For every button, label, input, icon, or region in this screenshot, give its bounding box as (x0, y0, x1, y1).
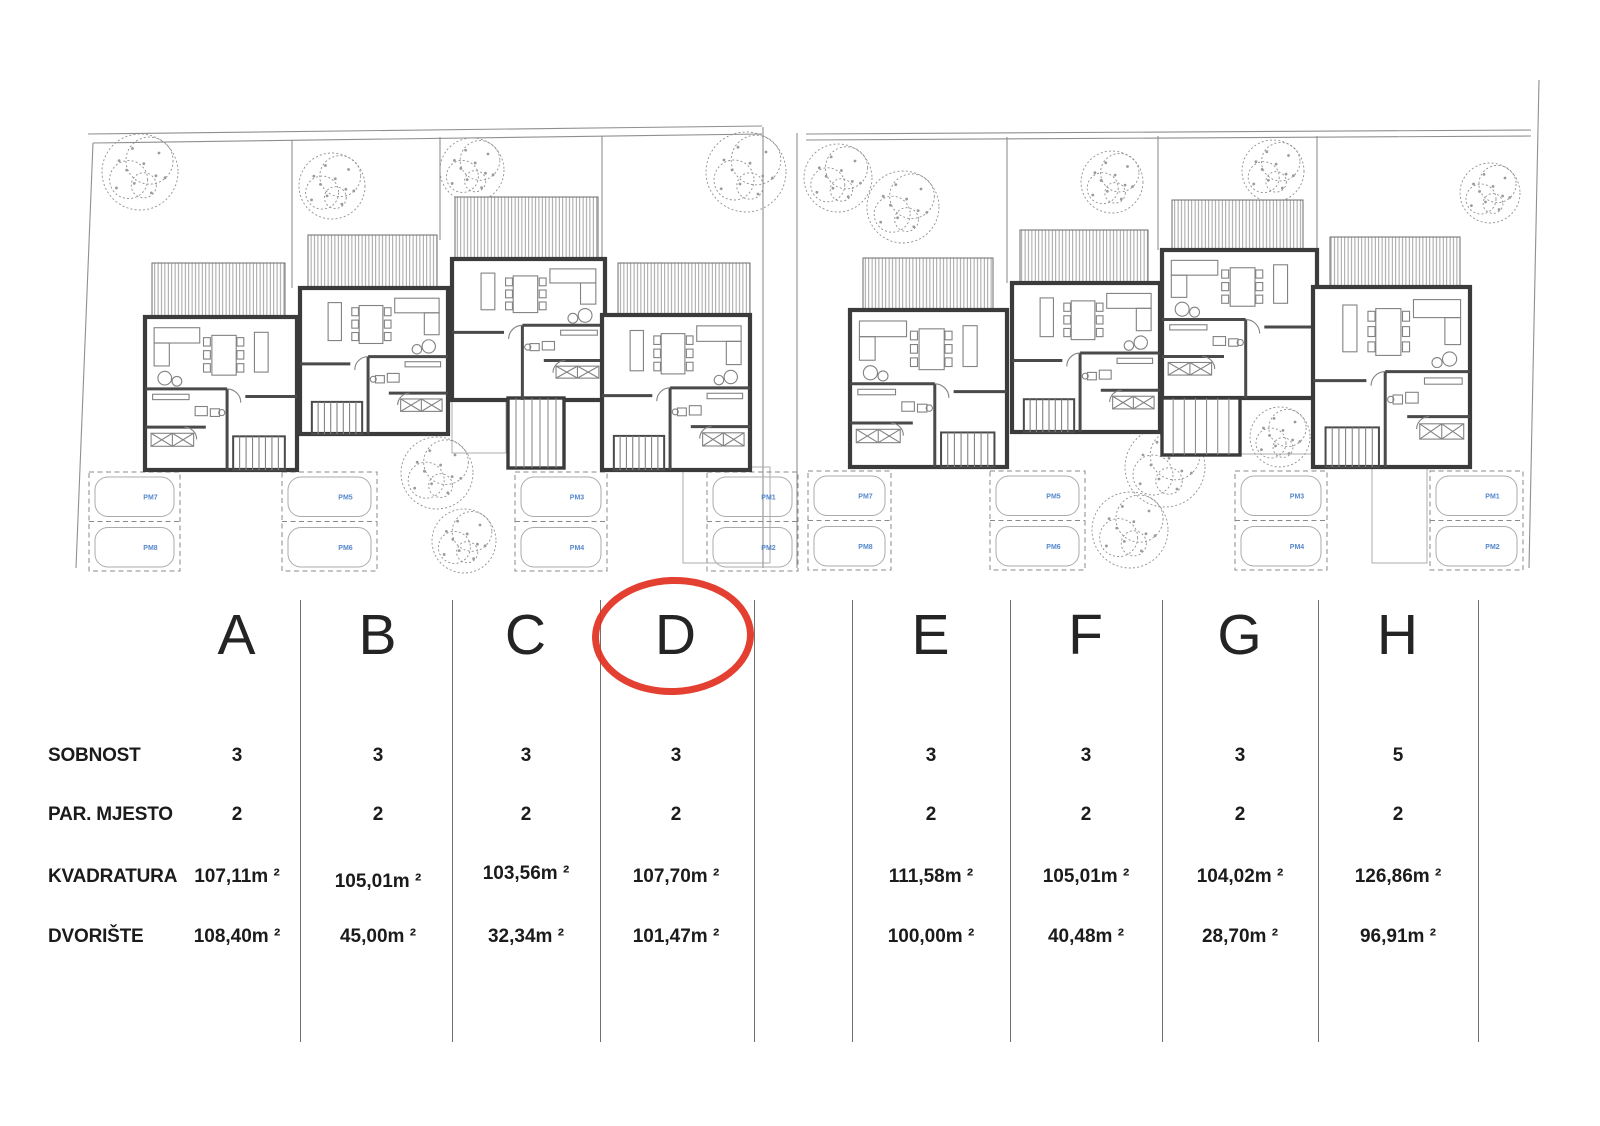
roof-hatch (455, 197, 598, 259)
unit-letter-g: G (1217, 602, 1262, 668)
tree (1460, 163, 1520, 223)
parking-spot-label: PM5 (338, 494, 353, 501)
parking-spot-label: PM8 (858, 544, 873, 551)
car-outline (288, 528, 371, 568)
car-outline (713, 528, 792, 568)
car-outline (1241, 476, 1321, 516)
car-outline (814, 476, 885, 516)
house-footprint (850, 310, 1007, 467)
parking-spot-pair: PM5PM6 (282, 472, 377, 571)
cell-sobnost-b: 3 (373, 744, 384, 768)
cell-area-b: 105,01m ² (335, 870, 422, 894)
parking-spot-label: PM4 (570, 545, 585, 552)
tree (401, 437, 473, 509)
row-label-par-mjesto: PAR. MJESTO (48, 803, 173, 827)
car-outline (95, 528, 174, 568)
parking-spot-pair: PM3PM4 (515, 472, 607, 571)
cell-sobnost-e: 3 (926, 744, 937, 768)
cell-sobnost-d: 3 (671, 744, 682, 768)
unit-letter-b: B (358, 602, 397, 668)
tree (102, 134, 178, 210)
cell-area-h: 126,86m ² (1355, 865, 1442, 889)
boundary-line (1529, 80, 1539, 568)
house-D (602, 263, 750, 470)
roof-hatch (152, 263, 285, 317)
cell-yard-b: 45,00m ² (340, 925, 416, 949)
floorplan-page: PM7PM8PM5PM6PM3PM4PM1PM2PM7PM8PM5PM6PM3P… (0, 0, 1600, 1126)
car-outline (996, 527, 1079, 567)
cell-area-g: 104,02m ² (1197, 865, 1284, 889)
cell-parking-b: 2 (373, 803, 384, 827)
roof-hatch (618, 263, 750, 315)
parking-spot-label: PM1 (761, 494, 776, 501)
boundary-line (76, 143, 93, 568)
car-outline (95, 477, 174, 517)
tree (1081, 151, 1143, 213)
car-outline (1436, 476, 1517, 516)
car-outline (521, 477, 601, 517)
parking-spot-label: PM3 (570, 494, 585, 501)
parking-spot-pair: PM5PM6 (990, 471, 1085, 570)
unit-letter-e: E (911, 602, 950, 668)
parking-spot-label: PM6 (338, 545, 353, 552)
house-footprint (1162, 250, 1317, 398)
cell-parking-g: 2 (1235, 803, 1246, 827)
cell-sobnost-g: 3 (1235, 744, 1246, 768)
parking-spot-label: PM5 (1046, 493, 1061, 500)
cell-yard-c: 32,34m ² (488, 925, 564, 949)
house-B (300, 235, 448, 434)
table-divider (452, 600, 453, 1042)
terrace-outline (1372, 467, 1427, 563)
house-footprint (602, 315, 750, 470)
house-E (850, 258, 1007, 467)
cell-yard-e: 100,00m ² (888, 925, 975, 949)
tree (1242, 140, 1304, 202)
terrace-outline (683, 467, 770, 563)
unit-letter-h: H (1377, 602, 1419, 668)
cell-sobnost-h: 5 (1393, 744, 1404, 768)
house-footprint (300, 288, 448, 434)
row-label-sobnost: SOBNOST (48, 744, 141, 768)
tree (867, 171, 939, 243)
car-outline (713, 477, 792, 517)
parking-spot-label: PM8 (143, 545, 158, 552)
table-divider (1318, 600, 1319, 1042)
cell-sobnost-a: 3 (232, 744, 243, 768)
cell-parking-e: 2 (926, 803, 937, 827)
roof-hatch (1172, 200, 1303, 250)
roof-hatch (1330, 237, 1460, 287)
tree (804, 144, 872, 212)
table-divider (1162, 600, 1163, 1042)
parking-spot-pair: PM7PM8 (89, 472, 180, 571)
cell-yard-f: 40,48m ² (1048, 925, 1124, 949)
selection-ellipse (590, 574, 756, 698)
cell-parking-c: 2 (521, 803, 532, 827)
row-label-dvoriste: DVORIŠTE (48, 925, 144, 949)
cell-yard-d: 101,47m ² (633, 925, 720, 949)
tree (1250, 407, 1310, 467)
cell-area-e: 111,58m ² (889, 865, 974, 889)
parking-spot-label: PM6 (1046, 544, 1061, 551)
parking-spot-pair: PM1PM2 (707, 472, 798, 571)
unit-letter-a: A (217, 602, 256, 668)
car-outline (288, 477, 371, 517)
cell-parking-a: 2 (232, 803, 243, 827)
house-footprint (452, 259, 605, 400)
car-outline (1241, 527, 1321, 567)
table-divider (754, 600, 755, 1042)
parking-spot-label: PM7 (858, 493, 873, 500)
roof-hatch (1020, 230, 1148, 283)
cell-area-c: 103,56m ² (483, 862, 570, 886)
cell-yard-g: 28,70m ² (1202, 925, 1278, 949)
parking-spot-label: PM1 (1485, 493, 1500, 500)
cell-sobnost-c: 3 (521, 744, 532, 768)
table-divider (1478, 600, 1479, 1042)
parking-spot-pair: PM1PM2 (1430, 471, 1523, 570)
unit-letter-c: C (505, 602, 547, 668)
boundary-line (806, 130, 1531, 134)
tree (432, 509, 496, 573)
car-outline (996, 476, 1079, 516)
table-divider (600, 600, 601, 1042)
row-label-kvadratura: KVADRATURA (48, 865, 177, 889)
car-outline (521, 528, 601, 568)
house-C (452, 197, 605, 468)
car-outline (814, 527, 885, 567)
house-footprint (1313, 287, 1470, 467)
cell-parking-f: 2 (1081, 803, 1092, 827)
cell-area-d: 107,70m ² (633, 865, 720, 889)
roof-hatch (308, 235, 437, 288)
unit-letter-f: F (1068, 602, 1104, 668)
cell-parking-h: 2 (1393, 803, 1404, 827)
house-H (1313, 237, 1470, 467)
house-footprint (1012, 283, 1160, 432)
house-A (145, 263, 297, 470)
table-divider (852, 600, 853, 1042)
cell-area-f: 105,01m ² (1043, 865, 1130, 889)
cell-sobnost-f: 3 (1081, 744, 1092, 768)
tree (440, 138, 504, 202)
tree (299, 153, 365, 219)
parking-spot-label: PM2 (761, 545, 776, 552)
boundary-line (88, 126, 762, 134)
parking-spot-label: PM2 (1485, 544, 1500, 551)
house-F (1012, 230, 1160, 432)
house-G (1162, 200, 1317, 455)
tree (706, 132, 786, 212)
site-plan: PM7PM8PM5PM6PM3PM4PM1PM2PM7PM8PM5PM6PM3P… (0, 0, 1600, 580)
tree (1092, 492, 1168, 568)
parking-spot-label: PM4 (1290, 544, 1305, 551)
boundary-line (93, 134, 762, 143)
cell-yard-h: 96,91m ² (1360, 925, 1436, 949)
table-divider (1010, 600, 1011, 1042)
parking-spot-label: PM3 (1290, 493, 1305, 500)
cell-parking-d: 2 (671, 803, 682, 827)
boundary-line (806, 136, 1531, 140)
parking-spot-label: PM7 (143, 494, 158, 501)
table-divider (300, 600, 301, 1042)
parking-spot-pair: PM7PM8 (808, 471, 891, 570)
parking-spot-pair: PM3PM4 (1235, 471, 1327, 570)
roof-hatch (863, 258, 993, 310)
cell-yard-a: 108,40m ² (194, 925, 281, 949)
cell-area-a: 107,11m ² (194, 865, 280, 889)
house-footprint (145, 317, 297, 470)
car-outline (1436, 527, 1517, 567)
